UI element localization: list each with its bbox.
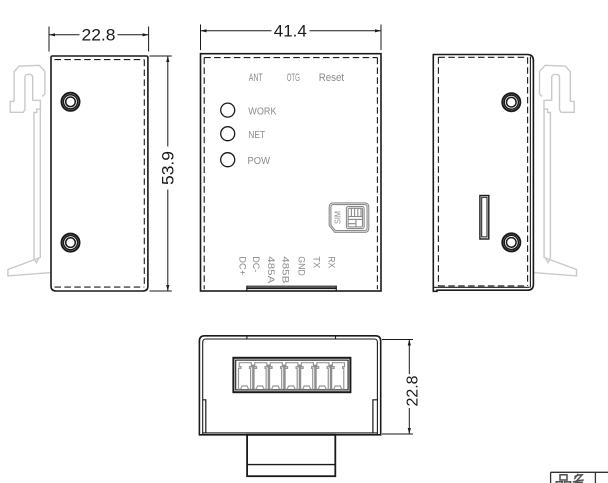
svg-text:DC-: DC- <box>251 256 261 272</box>
svg-text:485A: 485A <box>266 256 276 283</box>
svg-text:RX: RX <box>326 256 336 268</box>
svg-text:TX: TX <box>312 256 322 268</box>
svg-text:GND: GND <box>297 256 307 276</box>
svg-text:SIM: SIM <box>332 211 342 224</box>
svg-text:53.9: 53.9 <box>160 151 178 185</box>
svg-text:WORK: WORK <box>248 105 276 117</box>
svg-text:485B: 485B <box>281 256 291 283</box>
svg-text:22.8: 22.8 <box>405 375 422 406</box>
svg-text:22.8: 22.8 <box>82 27 116 45</box>
svg-text:Reset: Reset <box>319 72 344 84</box>
svg-text:POW: POW <box>248 155 271 167</box>
svg-text:DC+: DC+ <box>238 256 248 275</box>
svg-text:ANT: ANT <box>249 72 263 84</box>
svg-text:NET: NET <box>248 129 265 141</box>
svg-text:41.4: 41.4 <box>274 23 307 41</box>
svg-text:OTG: OTG <box>287 72 300 84</box>
